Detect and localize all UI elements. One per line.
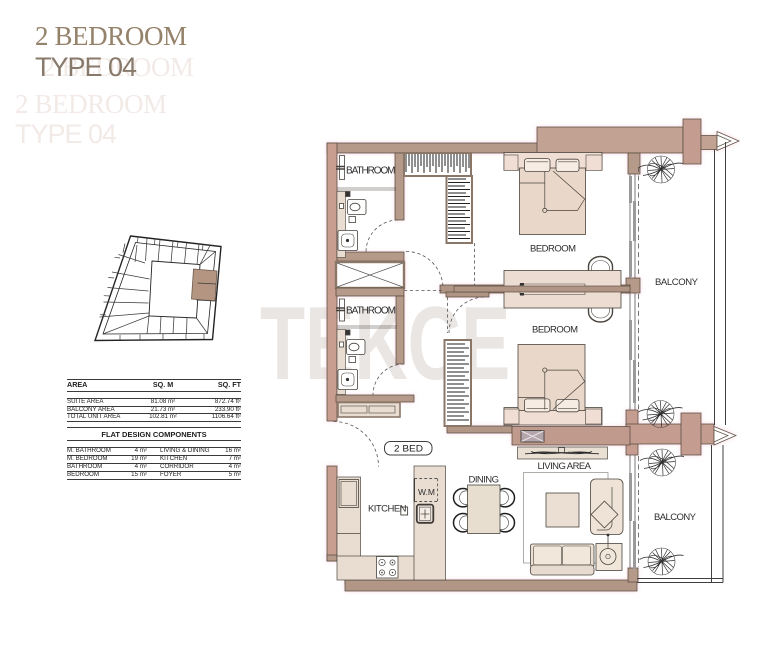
- svg-text:LIVING AREA: LIVING AREA: [538, 461, 592, 472]
- svg-text:BALCONY: BALCONY: [655, 277, 699, 288]
- svg-text:2 BED: 2 BED: [394, 444, 424, 454]
- svg-text:DINING: DINING: [469, 475, 500, 486]
- svg-text:BEDROOM: BEDROOM: [532, 325, 578, 336]
- svg-text:W.M: W.M: [418, 487, 435, 497]
- svg-text:BEDROOM: BEDROOM: [530, 244, 576, 255]
- svg-text:KITCHEN: KITCHEN: [368, 504, 407, 515]
- svg-text:BATHROOM: BATHROOM: [346, 306, 396, 317]
- svg-text:BATHROOM: BATHROOM: [346, 166, 396, 177]
- svg-text:BALCONY: BALCONY: [654, 512, 697, 523]
